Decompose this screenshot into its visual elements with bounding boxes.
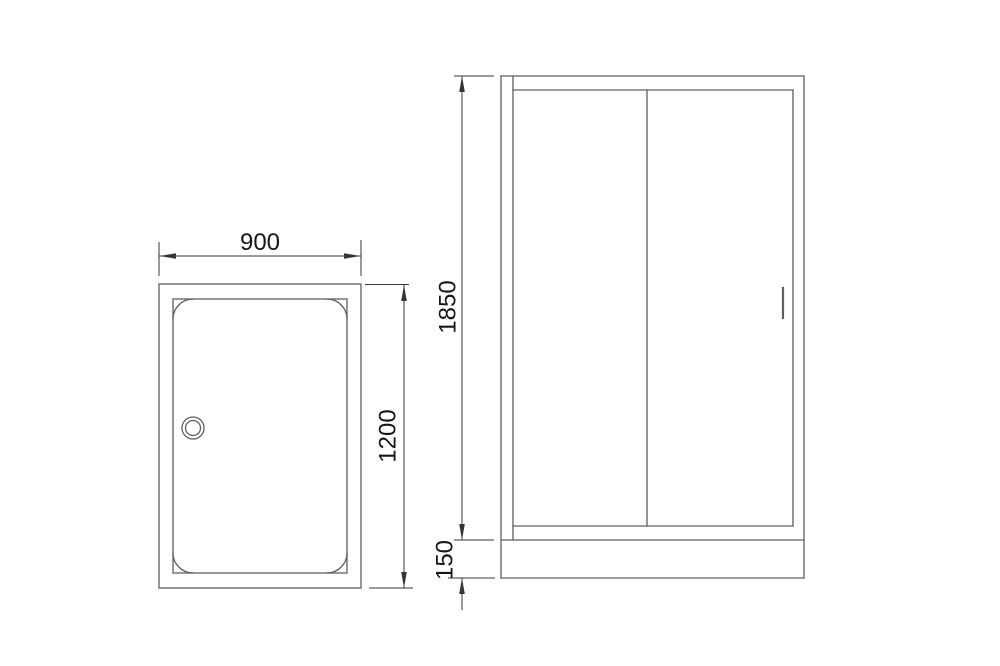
dimension-lines bbox=[159, 76, 495, 610]
basin-corner-arc-bottom-left bbox=[173, 553, 193, 573]
shower-enclosure-technical-drawing: 900 1200 1850 150 bbox=[0, 0, 1000, 666]
tray-height-dimension-label: 150 bbox=[432, 540, 459, 580]
drain-inner-circle bbox=[186, 421, 201, 436]
tray-outer-rim bbox=[159, 284, 361, 588]
dimension-labels: 900 1200 1850 150 bbox=[240, 229, 462, 580]
door-height-arrow-top-icon bbox=[459, 76, 465, 92]
basin-corner-arc-top-right bbox=[327, 299, 347, 319]
width-dimension-label: 900 bbox=[240, 229, 280, 256]
basin-corner-arc-top-left bbox=[173, 299, 193, 319]
door-height-arrow-bottom-icon bbox=[459, 524, 465, 540]
tray-inner-basin bbox=[173, 299, 347, 573]
width-arrow-right-icon bbox=[344, 253, 361, 259]
basin-corner-arc-bottom-right bbox=[327, 553, 347, 573]
depth-arrow-top-icon bbox=[401, 285, 407, 301]
depth-dimension-label: 1200 bbox=[375, 409, 402, 462]
depth-arrow-bottom-icon bbox=[401, 572, 407, 588]
technical-drawing-page: 900 1200 1850 150 bbox=[0, 0, 1000, 666]
tray-height-arrow-bottom-icon bbox=[459, 578, 465, 594]
width-arrow-left-icon bbox=[160, 253, 177, 259]
tray-top-view bbox=[159, 284, 361, 588]
enclosure-front-view bbox=[501, 76, 804, 578]
door-height-dimension-label: 1850 bbox=[435, 280, 462, 333]
dimension-arrowheads bbox=[160, 76, 465, 594]
